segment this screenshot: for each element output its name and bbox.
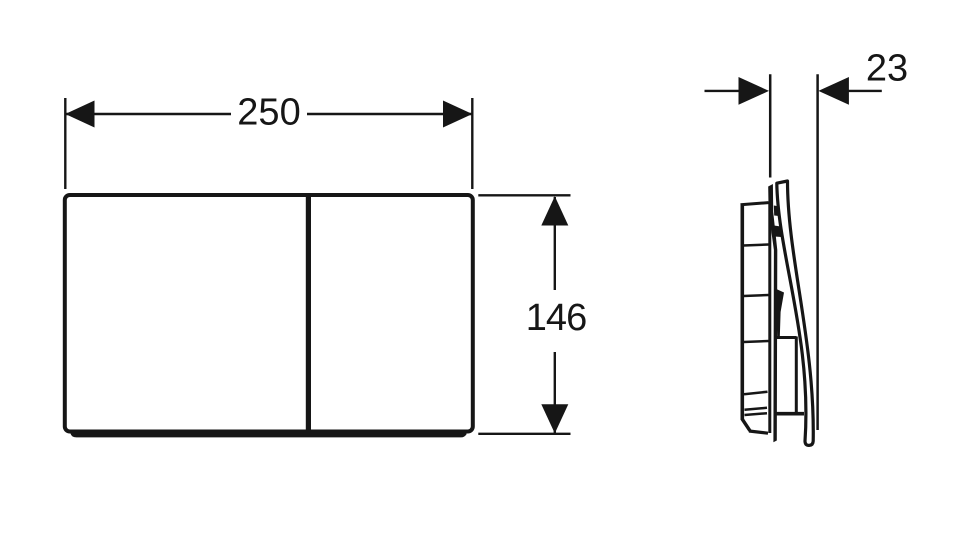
- svg-text:146: 146: [526, 297, 586, 339]
- svg-text:23: 23: [866, 48, 908, 90]
- svg-text:250: 250: [237, 92, 300, 134]
